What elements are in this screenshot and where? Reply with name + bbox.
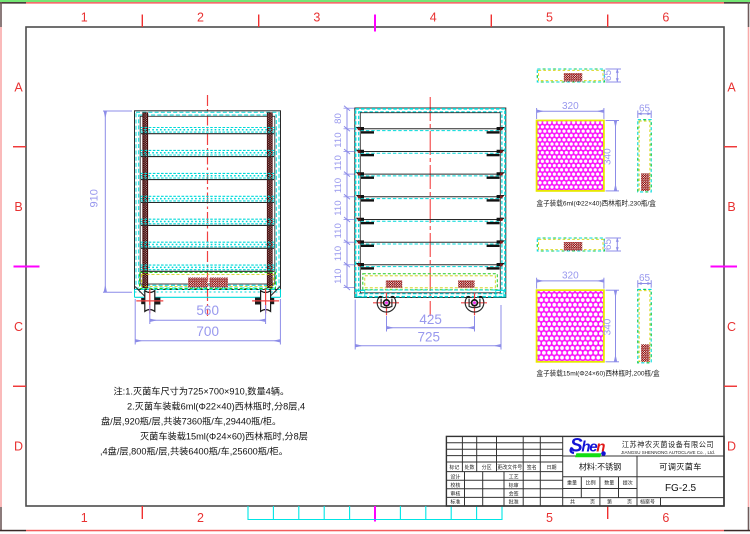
svg-text:盒子装载15ml(Φ24×60)西林瓶时,200瓶/盒: 盒子装载15ml(Φ24×60)西林瓶时,200瓶/盒 (537, 369, 660, 378)
svg-text:560: 560 (196, 303, 219, 318)
svg-text:65: 65 (639, 104, 651, 115)
svg-text:5: 5 (546, 11, 553, 25)
svg-text:2: 2 (197, 511, 204, 525)
svg-text:审核: 审核 (450, 491, 460, 498)
svg-text:2: 2 (197, 11, 204, 25)
svg-text:共: 共 (570, 499, 575, 506)
svg-text:6: 6 (662, 511, 669, 525)
svg-text:档案号: 档案号 (640, 499, 655, 506)
svg-text:材料:不锈钢: 材料:不锈钢 (579, 462, 621, 472)
svg-text:比例: 比例 (586, 480, 596, 487)
svg-text:分区: 分区 (482, 464, 492, 471)
svg-text:6: 6 (662, 11, 669, 25)
svg-text:标记: 标记 (449, 464, 459, 471)
svg-text:B: B (14, 200, 22, 214)
svg-text:盒子装载6ml(Φ22×40)西林瓶时,230瓶/盒: 盒子装载6ml(Φ22×40)西林瓶时,230瓶/盒 (537, 199, 657, 208)
svg-text:A: A (14, 80, 23, 94)
svg-text:725: 725 (418, 330, 441, 345)
svg-text:标审: 标审 (509, 482, 519, 489)
svg-text:第: 第 (607, 499, 612, 506)
svg-text:会签: 会签 (509, 491, 519, 498)
svg-text:910: 910 (89, 189, 101, 207)
svg-text:110: 110 (333, 200, 344, 215)
svg-text:校核: 校核 (450, 482, 460, 489)
svg-text:1: 1 (81, 511, 88, 525)
svg-text:320: 320 (562, 271, 579, 282)
svg-text:340: 340 (603, 318, 614, 335)
svg-text:65: 65 (603, 70, 614, 82)
svg-text:FG-2.5: FG-2.5 (665, 483, 697, 494)
svg-text:批准: 批准 (509, 499, 519, 506)
svg-text:4: 4 (430, 11, 437, 25)
svg-text:110: 110 (333, 132, 344, 147)
svg-text:提次: 提次 (623, 480, 633, 487)
svg-text:设计: 设计 (450, 473, 460, 480)
svg-text:标准: 标准 (450, 499, 460, 506)
svg-text:处数: 处数 (464, 464, 474, 471)
svg-text:更改文件号: 更改文件号 (497, 464, 522, 471)
svg-text:江苏神农灭菌设备有限公司: 江苏神农灭菌设备有限公司 (622, 440, 714, 449)
svg-text:110: 110 (333, 155, 344, 170)
svg-text:页: 页 (627, 500, 632, 506)
svg-text:签名: 签名 (527, 464, 537, 471)
svg-text:340: 340 (603, 148, 614, 165)
svg-text:日期: 日期 (546, 465, 556, 471)
svg-text:D: D (14, 440, 23, 454)
svg-text:65: 65 (639, 273, 651, 284)
svg-text:425: 425 (419, 312, 442, 327)
svg-text:2.灭菌车装载6ml(Φ22×40)西林瓶时,分8层,4: 2.灭菌车装载6ml(Φ22×40)西林瓶时,分8层,4 (127, 401, 305, 412)
svg-text:重量: 重量 (567, 480, 577, 487)
svg-text:注:1.灭菌车尺寸为725×700×910,数量4辆。: 注:1.灭菌车尺寸为725×700×910,数量4辆。 (114, 386, 290, 397)
svg-text:A: A (727, 80, 736, 94)
svg-text:JIANGSU SHENNONG AUTOCLAVE: JIANGSU SHENNONG AUTOCLAVE Co. , Ltd. (621, 450, 715, 455)
svg-text:C: C (14, 320, 23, 334)
svg-text:D: D (727, 440, 736, 454)
svg-text:110: 110 (333, 223, 344, 238)
svg-text:80: 80 (333, 113, 344, 124)
svg-text:65: 65 (603, 239, 614, 251)
svg-text:1: 1 (81, 11, 88, 25)
svg-text:700: 700 (196, 324, 219, 339)
svg-text:C: C (727, 320, 736, 334)
svg-text:数量: 数量 (604, 480, 614, 487)
svg-text:工艺: 工艺 (509, 474, 519, 480)
svg-text:110: 110 (333, 269, 344, 284)
svg-text:,4盘/层,800瓶/层,共装6400瓶/车,25600瓶/: ,4盘/层,800瓶/层,共装6400瓶/车,25600瓶/柜。 (100, 446, 288, 457)
svg-text:3: 3 (313, 11, 320, 25)
svg-text:110: 110 (333, 178, 344, 193)
svg-text:320: 320 (562, 101, 579, 112)
svg-text:灭菌车装载15ml(Φ24×60)西林瓶时,分8层: 灭菌车装载15ml(Φ24×60)西林瓶时,分8层 (140, 431, 308, 442)
svg-text:可调灭菌车: 可调灭菌车 (659, 462, 701, 472)
svg-text:盘/层,920瓶/层,共装7360瓶/车,29440瓶/柜。: 盘/层,920瓶/层,共装7360瓶/车,29440瓶/柜。 (101, 416, 281, 427)
svg-text:5: 5 (546, 511, 553, 525)
svg-text:B: B (727, 200, 735, 214)
svg-text:页: 页 (590, 500, 595, 506)
svg-text:110: 110 (333, 246, 344, 261)
